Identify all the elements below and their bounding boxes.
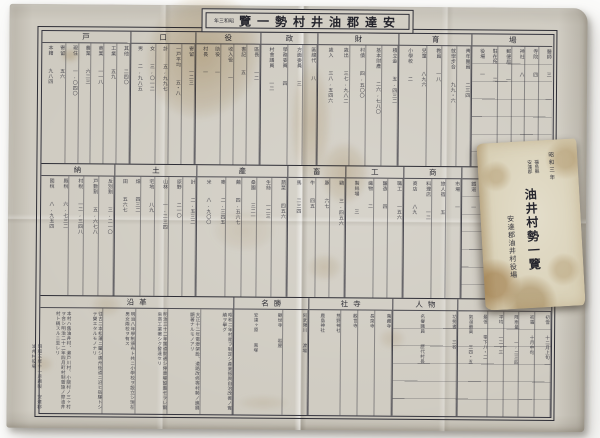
table-column: 書記 五: [233, 44, 247, 165]
table-column: 村債 四,五〇〇: [349, 45, 366, 166]
table-column: 市場 一: [446, 179, 461, 298]
section-columns: 國稅 八,九五四縣稅 六,七三二村稅 一二,三四八戸數割 五,六七八反別割 三,…: [40, 176, 114, 295]
table-section: 人物名譽職員 歷代村長功勞者 三名: [391, 298, 457, 415]
booklet-publisher: 安達郡油井村役場: [505, 215, 519, 279]
table-column: 區長 一二: [246, 44, 260, 165]
section-columns: 鹿島神社熊野神社觀世寺長泉寺萬藏寺: [308, 310, 392, 415]
table-column: 區總代 八: [302, 45, 317, 166]
table-section: 財歲入 三八,五四六歲出 三七,九八二村債 四,五〇〇基本財產 二六,七八〇積立…: [316, 33, 398, 166]
table-section: 畜馬 二三四牛 四五豚 六七鷄 三,四五六: [286, 166, 345, 297]
table-column: 生絲 一二三: [256, 178, 272, 297]
table-body: 戸本籍 九八四寄留 五六現住 一,〇四〇農業 六二三商業 一一八工業 五九其他 …: [38, 29, 554, 417]
table-column: 觀世寺: [341, 310, 359, 415]
table-section: 商商店 八九料理店 一二旅人宿 五市場 一: [402, 167, 461, 298]
table-column: 釀造 四: [373, 179, 388, 298]
table-column: 國稅 八,九五四: [40, 176, 55, 295]
table-column: 其他 二四〇: [116, 43, 130, 164]
table-section: 納國稅 八,九五四縣稅 六,七三二村稅 一二,三四八戸數割 五,六七八反別割 三…: [40, 164, 114, 295]
table-column: 村會議員 一二: [260, 44, 274, 165]
table-section: 氣象氣温最高 三四・五最低 零下八・二平均 一二・三降雨量 一,二三四初霜 十月…: [457, 299, 551, 416]
section-header: 戸: [42, 30, 130, 43]
table-column: 兒童 八九六: [412, 45, 428, 166]
table-column: 初霜 十月中旬: [519, 311, 535, 416]
section-columns: 氣温最高 三四・五最低 零下八・二平均 一二・三降雨量 一,二三四初霜 十月中旬…: [458, 311, 551, 416]
section-columns: 米 八,九〇〇麥 二,三四五繭 四,五六七桑園 三二一生絲 一二三蔬菜 四五六: [197, 177, 288, 296]
table-column: 製絲場 三: [345, 178, 359, 297]
section-header: 納: [41, 164, 114, 177]
table-column: 鷄 三,四五六: [330, 178, 345, 297]
table-column: 麥 二,三四五: [211, 177, 227, 296]
section-columns: 製絲場 三織物 二釀造 四職工 一五六: [345, 178, 403, 297]
table-column: 本籍 九八四: [41, 42, 54, 163]
section-header: 名勝: [234, 297, 308, 310]
table-column: 織物 二: [359, 179, 374, 298]
table-column: 長泉寺: [358, 310, 376, 415]
table-column: 基本財產 二六,七八〇: [365, 45, 382, 166]
section-header: 政: [261, 32, 317, 44]
table-column: 畑 四三二: [127, 177, 142, 296]
table-column: 平均 一二・三: [488, 311, 504, 416]
table-column: 原野 二一〇: [168, 177, 183, 296]
booklet-title: 油井村勢一覽: [522, 187, 544, 272]
table-column: 功勞者 三名: [424, 311, 458, 416]
table-section: 社寺鹿島神社熊野神社觀世寺長泉寺萬藏寺: [307, 298, 392, 415]
section-columns: 男 二,九八五女 三,〇一二計 五,九九七一戸平均 五・八寄留 一二三: [130, 43, 195, 164]
section-header: 工: [346, 166, 403, 178]
table-section: 名勝安達ヶ原 黑塚觀世寺 岩屋阿武隈川 渡場: [233, 297, 309, 414]
booklet-cover: 昭和三年 福島縣 安達郡 油井村勢一覽 安達郡油井村役場: [476, 138, 585, 310]
table-band: 納國稅 八,九五四縣稅 六,七三二村稅 一二,三四八戸數割 五,六七八反別割 三…: [40, 163, 552, 299]
table-column: 女 三,〇一二: [142, 43, 156, 164]
colophon-text: 昭和三年十一月調製 安達郡油井村役場: [29, 344, 42, 414]
table-column: 現住 一,〇四〇: [65, 43, 79, 164]
table-column: 反別割 三,二一〇: [98, 177, 114, 296]
section-header: 財: [318, 33, 398, 46]
table-column: 職工 一五六: [388, 179, 403, 298]
table-column: 農業 六二三: [78, 43, 92, 164]
table-column: 學務委員 四: [274, 44, 289, 165]
table-column: 歲入 三八,五四六: [317, 45, 333, 166]
booklet-era: 昭和三年: [546, 152, 556, 182]
table-column: 往古二本松藩ニ屬シ奧州街道ニ沿ヒ宿驛トシテ榮エタルモノナリ: [70, 308, 103, 413]
section-columns: 馬 二三四牛 四五豚 六七鷄 三,四五六: [287, 178, 345, 297]
table-section: 土田 五六七畑 四三二宅地 八九山林 一,二三四原野 二一〇計 二,五三二: [113, 165, 196, 296]
table-column: 阿武隈川 渡場: [282, 310, 308, 415]
table-column: 鐵道 一: [461, 179, 476, 298]
table-column: 村長 一: [195, 44, 208, 165]
table-section: 役村長 一助役 一收入役 一書記 五區長 一二: [194, 32, 260, 165]
table-column: 旅人宿 五: [431, 179, 446, 298]
table-column: 山林 一,二三四: [154, 177, 169, 296]
table-column: 收入役 一: [220, 44, 234, 165]
section-header: 人物: [393, 298, 458, 311]
table-column: 名譽職員 歷代村長: [392, 310, 425, 415]
table-column: 萬藏寺: [374, 310, 392, 415]
booklet-region-line: 安達郡: [526, 160, 532, 174]
section-columns: 商店 八九料理店 一二旅人宿 五市場 一: [403, 179, 461, 298]
section-columns: 名譽職員 歷代村長功勞者 三名: [392, 310, 457, 415]
section-header: 役: [196, 32, 260, 45]
table-column: 安達ヶ原 黑塚: [234, 309, 259, 414]
table-column: 桑園 三二一: [241, 178, 257, 297]
section-header: 社寺: [309, 298, 392, 311]
booklet-region-line: 福島縣: [533, 159, 539, 173]
table-column: 鹿島神社: [308, 310, 325, 415]
table-column: 助役 一: [207, 44, 221, 165]
table-column: 田 五六七: [114, 177, 128, 296]
table-column: 明治三十二年鐵道開通シ停車場設置セラレ爾來商工業著シク發達セリ: [135, 308, 168, 413]
table-column: 歲出 三七,九八二: [333, 45, 350, 166]
table-column: 最低 零下八・二: [472, 311, 488, 416]
table-column: 昭和二年村是ヲ制定シ產業振興自治改善ノ實績ヲ擧グ: [200, 309, 233, 414]
section-columns: 歲入 三八,五四六歲出 三七,九八二村債 四,五〇〇基本財產 二六,七八〇積立金…: [317, 45, 398, 166]
section-columns: 田 五六七畑 四三二宅地 八九山林 一,二三四原野 二一〇計 二,五三二: [114, 177, 196, 296]
table-section: 沿革本村ハ舊油井村、瀨戸川村、小關村ノ三ヶ村ヲ合シ明治二十二年四月町村制實施ノ際…: [39, 296, 233, 414]
table-column: 寄留 一二三: [181, 44, 195, 165]
table-section: 口男 二,九八五女 三,〇一二計 五,九九七一戸平均 五・八寄留 一二三: [129, 31, 195, 164]
table-column: 馬 二三四: [287, 178, 301, 297]
table-column: 計 五,九九七: [155, 43, 169, 164]
table-column: 觀世寺 岩屋: [257, 309, 283, 414]
section-columns: 村長 一助役 一收入役 一書記 五區長 一二: [195, 44, 260, 165]
table-column: 蔬菜 四五六: [271, 178, 287, 297]
section-columns: 小學校 二兒童 八九六教員 一八就學步合 九九・六靑年團員 二三四: [399, 45, 472, 166]
section-header: 口: [131, 31, 195, 44]
section-header: 商: [404, 167, 461, 179]
table-column: 明治八年學制頒布ト共ニ小學校ヲ設立シ現在男女兩校ヲ有ス: [103, 308, 136, 413]
table-column: 寄留 五六: [53, 43, 67, 164]
table-column: 大正十二年電燈架設、道路改修等村勢ノ進展顯著ナルモノアリ: [168, 309, 201, 414]
table-column: 方面委員 三: [288, 44, 303, 165]
booklet-region: 福島縣 安達郡: [526, 159, 539, 173]
table-column: 男 二,九八五: [130, 43, 143, 164]
table-section: 育小學校 二兒童 八九六教員 一八就學步合 九九・六靑年團員 二三四: [398, 33, 472, 166]
section-header: 育: [400, 33, 472, 46]
table-column: 就學步合 九九・六: [441, 46, 457, 167]
table-column: 氣温最高 三四・五: [458, 311, 473, 416]
table-column: 村稅 一二,三四八: [69, 176, 85, 295]
sheet-title-box: 年三和昭 覽一勢村井油郡達安: [201, 8, 413, 34]
table-column: 縣稅 六,七三二: [54, 176, 70, 295]
table-section: 工製絲場 三織物 二釀造 四職工 一五六: [344, 166, 403, 297]
photo-of-village-statistics-broadsheet: 年三和昭 覽一勢村井油郡達安 戸本籍 九八四寄留 五六現住 一,〇四〇農業 六二…: [0, 0, 600, 438]
table-column: 商店 八九: [403, 179, 417, 298]
table-column: 小學校 二: [399, 45, 414, 166]
table-frame: 戸本籍 九八四寄留 五六現住 一,〇四〇農業 六二三商業 一一八工業 五九其他 …: [34, 26, 557, 421]
table-column: 米 八,九〇〇: [197, 177, 212, 296]
table-column: 宅地 八九: [141, 177, 156, 296]
table-column: 豚 六七: [315, 178, 330, 297]
section-header: 土: [115, 165, 197, 178]
section-columns: 安達ヶ原 黑塚觀世寺 岩屋阿武隈川 渡場: [234, 309, 309, 414]
table-column: 計 二,五三二: [182, 177, 197, 296]
section-header: 場: [473, 34, 553, 47]
table-section: 政村會議員 一二學務委員 四方面委員 三區總代 八: [259, 32, 317, 165]
section-columns: 本籍 九八四寄留 五六現住 一,〇四〇農業 六二三商業 一一八工業 五九其他 二…: [41, 42, 130, 163]
table-column: 牛 四五: [301, 178, 316, 297]
table-column: 熊野神社: [324, 310, 342, 415]
table-column: 靑年團員 二三四: [456, 46, 472, 167]
table-section: 戸本籍 九八四寄留 五六現住 一,〇四〇農業 六二三商業 一一八工業 五九其他 …: [41, 30, 130, 163]
table-column: 本村ハ舊油井村、瀨戸川村、小關村ノ三ヶ村ヲ合シ明治二十二年四月町村制實施ノ際油井…: [39, 308, 71, 413]
table-column: 料理店 一二: [417, 179, 432, 298]
table-column: 初雪 十二月上旬: [534, 312, 550, 417]
section-columns: 村會議員 一二學務委員 四方面委員 三區總代 八: [260, 44, 317, 165]
table-column: 積立金 五,四三二: [381, 45, 398, 166]
table-band: 沿革本村ハ舊油井村、瀨戸川村、小關村ノ三ヶ村ヲ合シ明治二十二年四月町村制實施ノ際…: [39, 295, 551, 417]
table-column: 工業 五九: [104, 43, 118, 164]
table-column: 繭 四,五六七: [226, 178, 242, 297]
table-column: 商業 一一八: [91, 43, 105, 164]
sheet-title-era: 年三和昭: [214, 17, 234, 24]
sheet-title: 覽一勢村井油郡達安: [239, 12, 401, 30]
table-column: 教員 一八: [427, 46, 443, 167]
table-column: 戸數割 五,六七八: [83, 176, 99, 295]
section-columns: 本村ハ舊油井村、瀨戸川村、小關村ノ三ヶ村ヲ合シ明治二十二年四月町村制實施ノ際油井…: [39, 308, 233, 414]
table-section: 產米 八,九〇〇麥 二,三四五繭 四,五六七桑園 三二一生絲 一二三蔬菜 四五六: [196, 165, 288, 296]
section-header: 畜: [288, 166, 345, 178]
table-column: 降雨量 一,二三四: [503, 311, 519, 416]
table-column: 一戸平均 五・八: [168, 43, 182, 164]
section-header: 產: [198, 165, 288, 178]
